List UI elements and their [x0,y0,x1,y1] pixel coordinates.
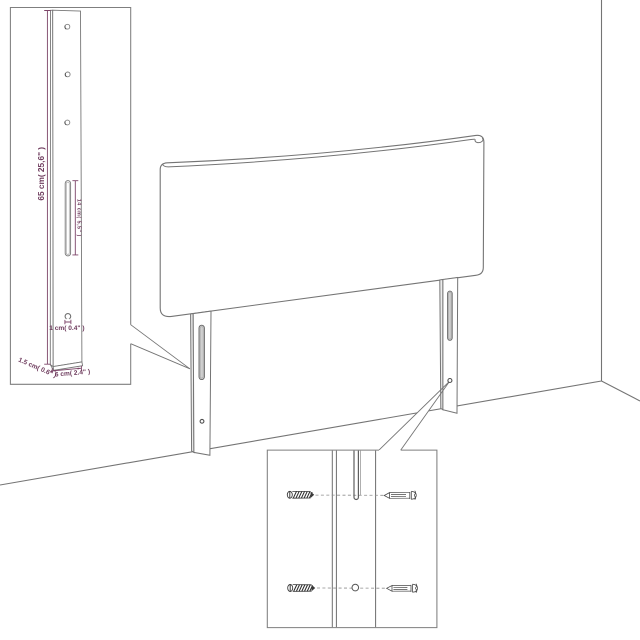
svg-text:1 cm( 0.4" ): 1 cm( 0.4" ) [49,325,84,332]
svg-text:65 cm( 25,6" ): 65 cm( 25,6" ) [36,147,46,201]
svg-text:14 cm( 5,5" ): 14 cm( 5,5" ) [76,199,82,237]
